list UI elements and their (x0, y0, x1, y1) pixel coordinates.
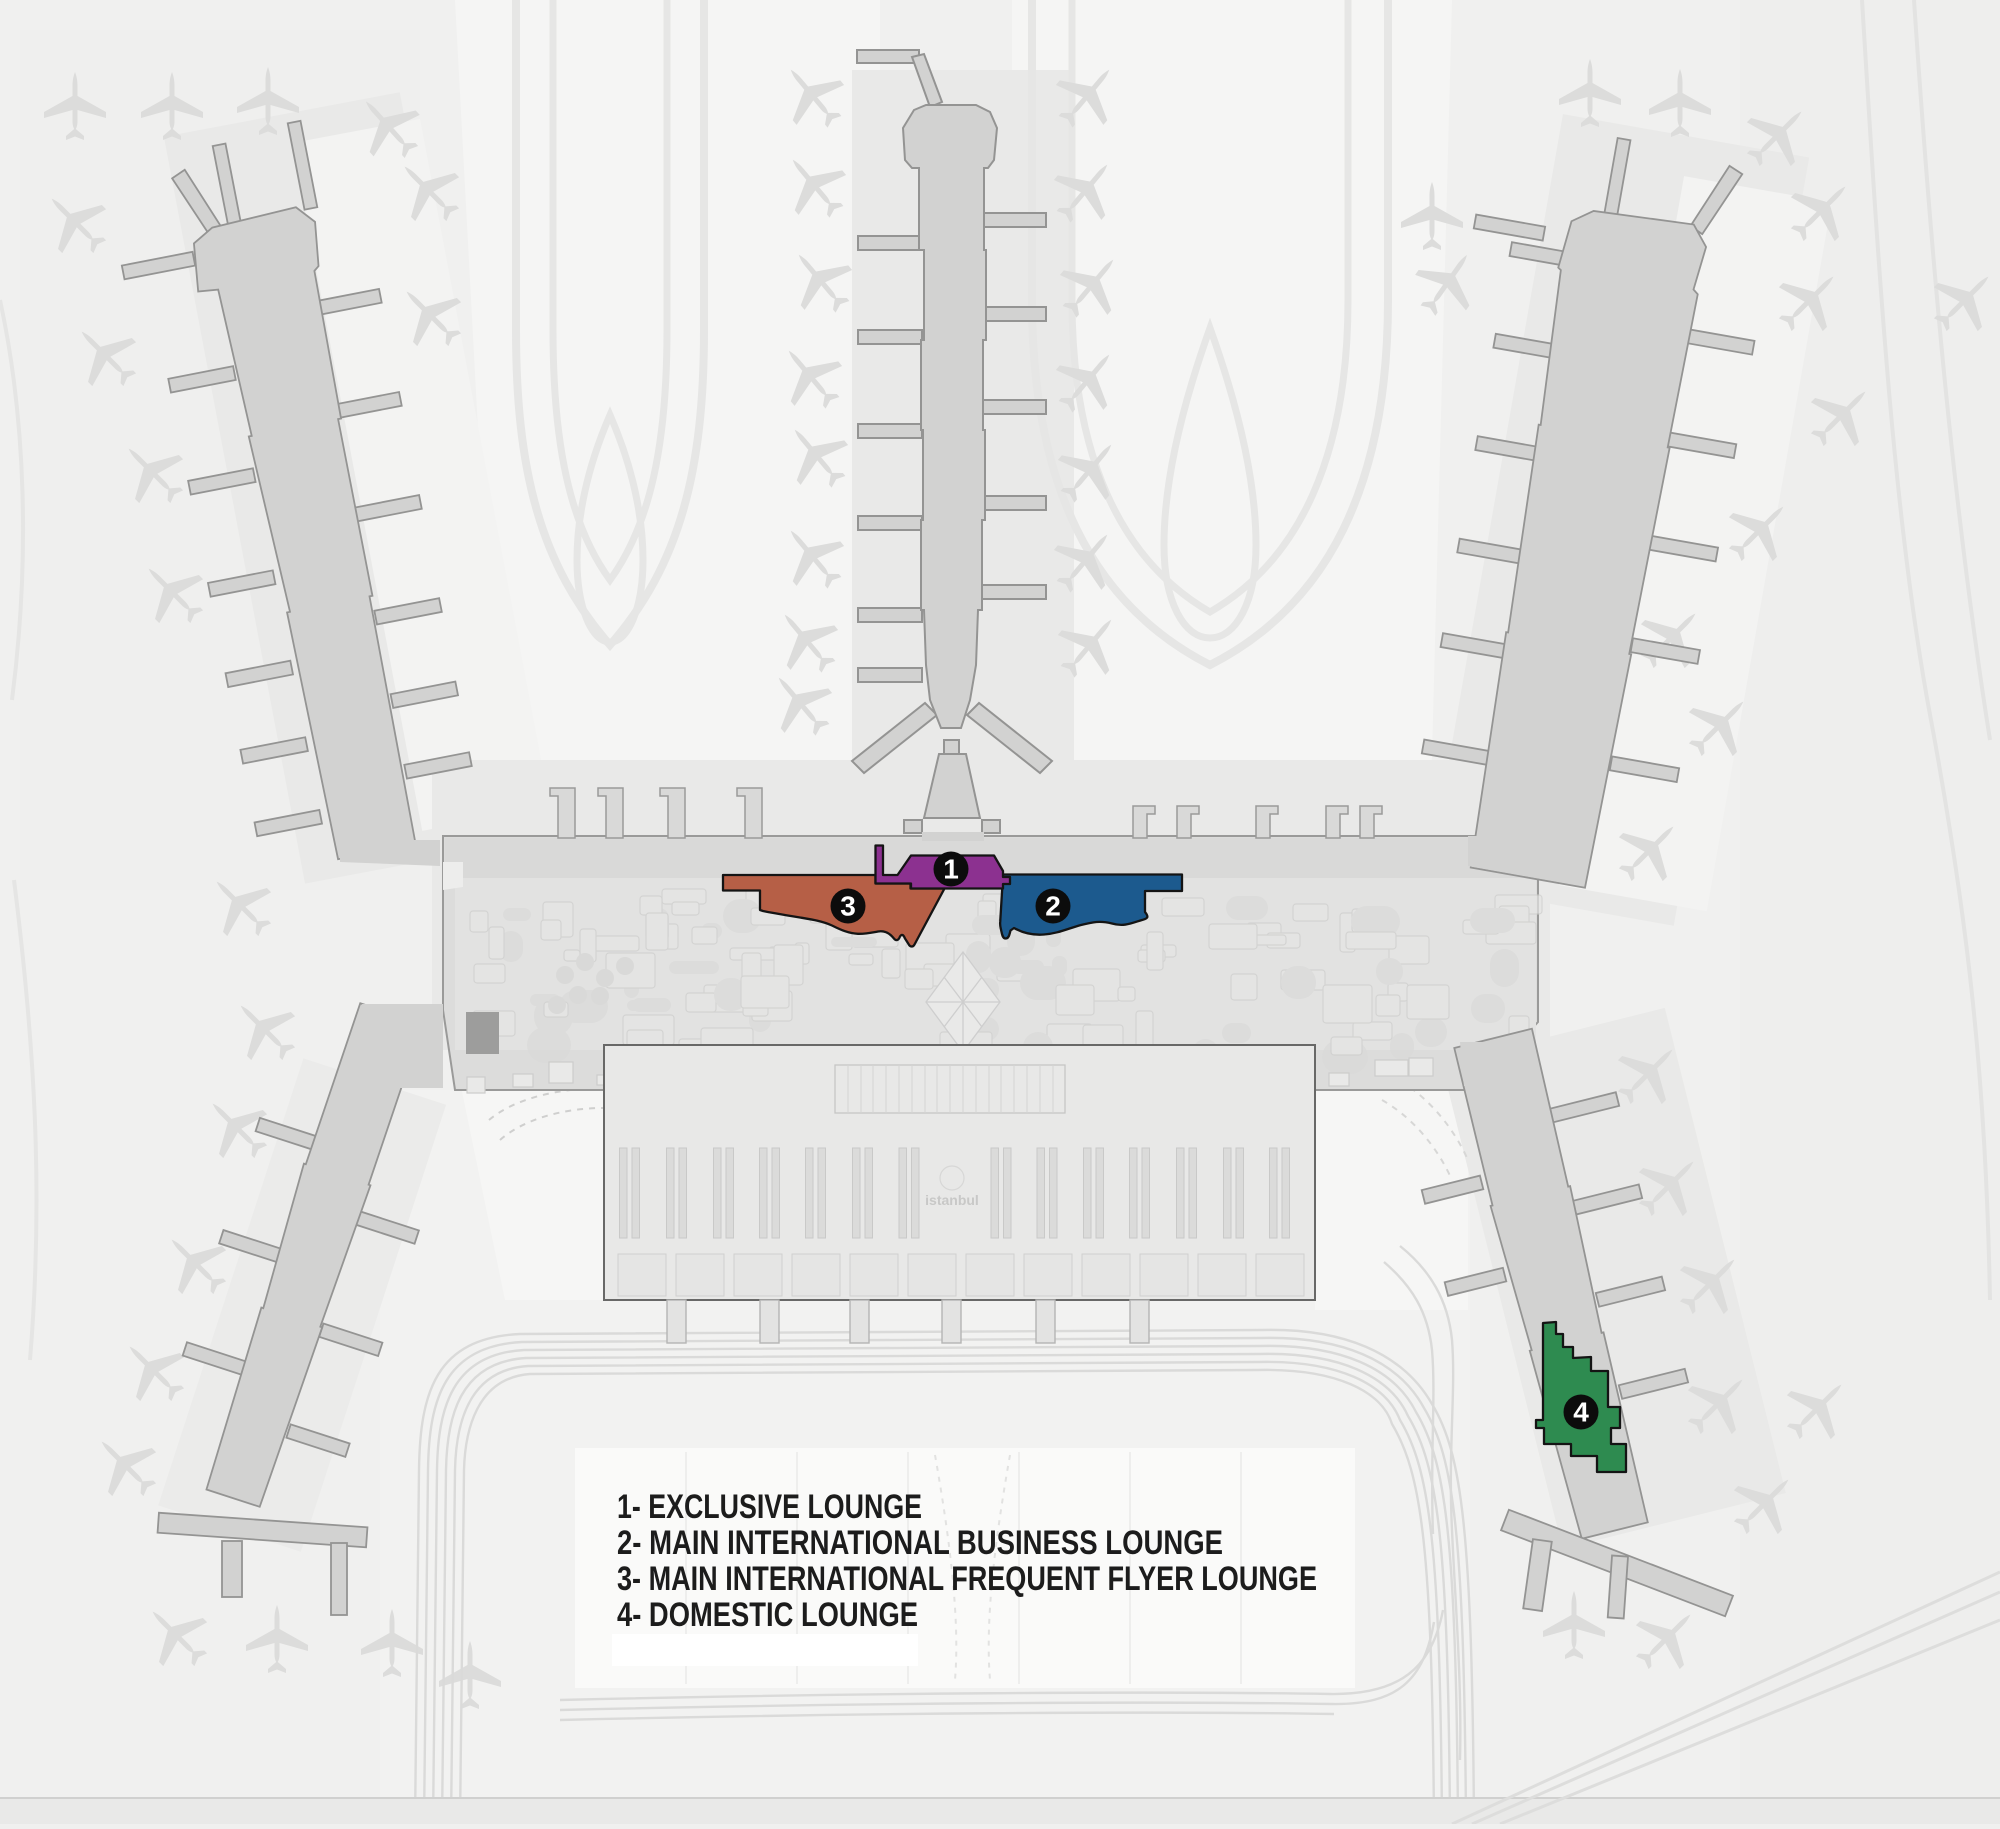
svg-text:3: 3 (840, 891, 856, 922)
svg-text:3- MAIN INTERNATIONAL FREQUENT: 3- MAIN INTERNATIONAL FREQUENT FLYER LOU… (617, 1560, 1317, 1598)
svg-text:4- DOMESTIC LOUNGE: 4- DOMESTIC LOUNGE (617, 1596, 918, 1634)
svg-text:4: 4 (1573, 1397, 1589, 1428)
svg-text:2- MAIN INTERNATIONAL BUSINESS: 2- MAIN INTERNATIONAL BUSINESS LOUNGE (617, 1524, 1223, 1562)
svg-text:1- EXCLUSIVE LOUNGE: 1- EXCLUSIVE LOUNGE (617, 1488, 922, 1526)
svg-text:1: 1 (943, 854, 959, 885)
svg-text:istanbul: istanbul (925, 1192, 979, 1208)
svg-text:2: 2 (1045, 891, 1061, 922)
